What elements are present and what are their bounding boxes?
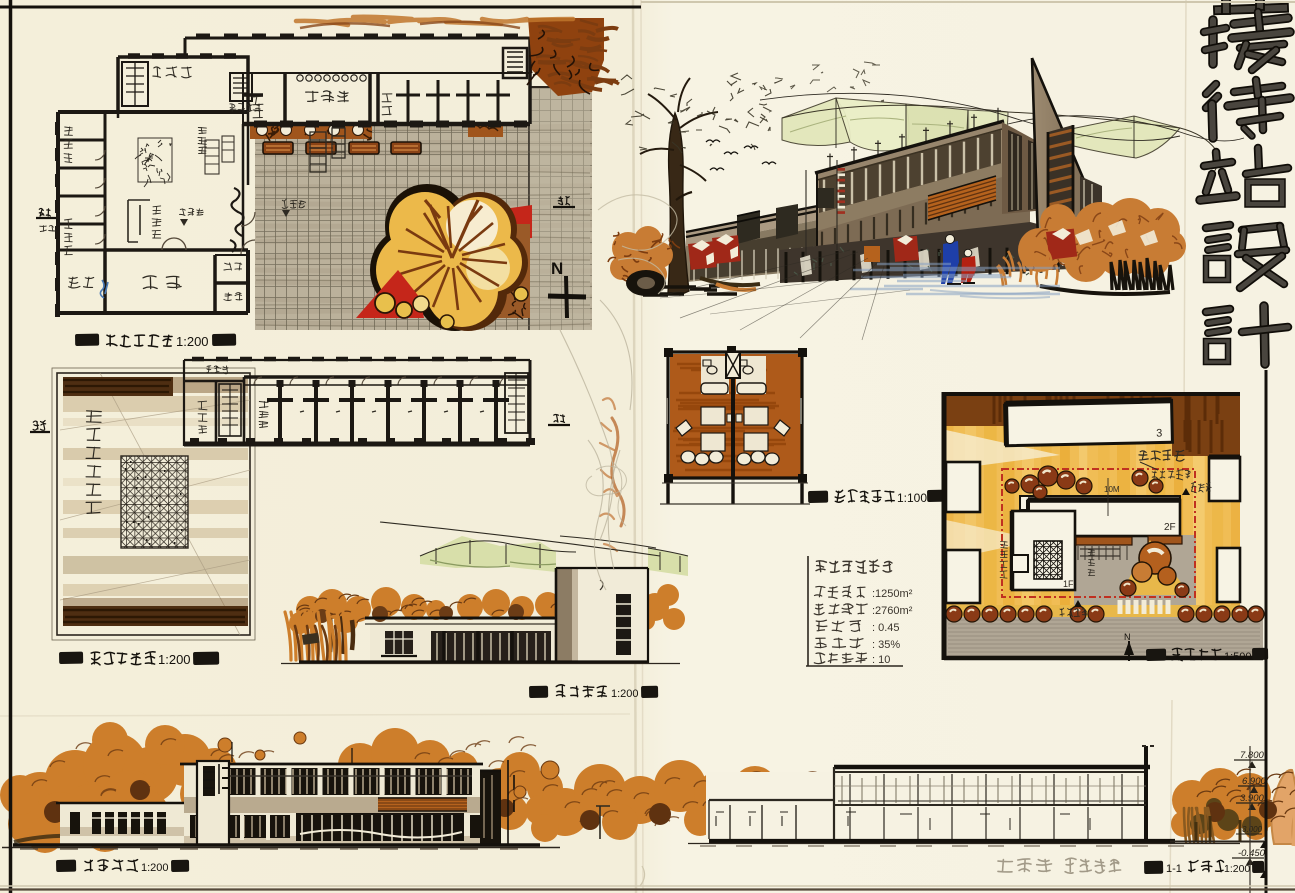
svg-text:6.900: 6.900 [1242, 776, 1266, 787]
svg-text:3.000: 3.000 [1242, 825, 1263, 834]
svg-text:1:200: 1:200 [1224, 863, 1250, 875]
svg-text:-0.450: -0.450 [1238, 848, 1266, 859]
svg-text:1:200: 1:200 [158, 652, 191, 667]
svg-text:: 35%: : 35% [872, 639, 900, 651]
svg-text:3.900: 3.900 [1240, 793, 1264, 804]
svg-text:1:500: 1:500 [1224, 651, 1252, 663]
svg-text:1F: 1F [1063, 579, 1074, 589]
svg-text:3: 3 [1156, 427, 1162, 439]
svg-text:2F: 2F [1164, 522, 1176, 533]
svg-text:1-1: 1-1 [1166, 863, 1182, 875]
svg-text:: 10: : 10 [872, 654, 890, 666]
svg-text::1250m²: :1250m² [872, 588, 913, 600]
svg-text:1:200: 1:200 [176, 334, 209, 349]
svg-text:1:100: 1:100 [897, 491, 927, 505]
svg-text:10M: 10M [1104, 485, 1120, 494]
svg-text:1:200: 1:200 [611, 688, 639, 700]
svg-text:N: N [551, 259, 563, 278]
svg-text:N: N [1124, 632, 1131, 642]
svg-text:: 0.45: : 0.45 [872, 622, 900, 634]
svg-text:7.800: 7.800 [1240, 750, 1264, 761]
svg-text:1:200: 1:200 [141, 862, 169, 874]
svg-text::2760m²: :2760m² [872, 605, 913, 617]
